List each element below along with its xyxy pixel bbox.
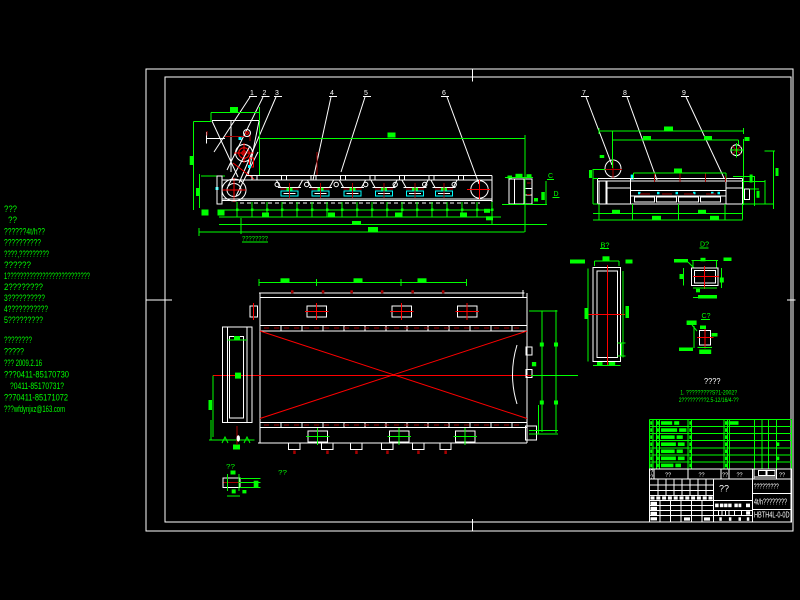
svg-text:1??????????????????????????: 1??????????????????????????	[4, 271, 90, 281]
svg-text:??: ??	[722, 473, 728, 479]
svg-text:4???????????: 4???????????	[4, 304, 48, 314]
svg-text:1: 1	[250, 90, 254, 97]
svg-text:1. ?????????S?1-2002?: 1. ?????????S?1-2002?	[680, 391, 738, 397]
svg-text:???0411-85170730: ???0411-85170730	[4, 370, 69, 380]
svg-text:???: ???	[4, 204, 17, 214]
svg-text:9: 9	[682, 90, 686, 97]
svg-text:2: 2	[263, 90, 267, 97]
svg-text:??: ??	[226, 464, 235, 471]
svg-text:?????????: ?????????	[754, 484, 779, 491]
svg-text:5?????????: 5?????????	[4, 315, 43, 325]
svg-text:??? 2009.2.16: ??? 2009.2.16	[4, 358, 42, 368]
svg-text:2?????????2.5-12/16/4-??: 2?????????2.5-12/16/4-??	[679, 398, 740, 404]
svg-text:6: 6	[442, 90, 446, 97]
svg-text:?????: ?????	[4, 347, 24, 357]
svg-text:??: ??	[8, 215, 17, 225]
svg-text:??70411-85171072: ??70411-85171072	[4, 393, 68, 403]
svg-text:8: 8	[623, 90, 627, 97]
svg-text:7: 7	[582, 90, 586, 97]
svg-text:?0411-85170731?: ?0411-85170731?	[10, 381, 64, 391]
svg-text:???wfdynjxz@163.com: ???wfdynjxz@163.com	[4, 404, 65, 414]
svg-text:4: 4	[330, 90, 334, 97]
svg-text:??????4t/h??: ??????4t/h??	[4, 227, 45, 237]
svg-text:2????????: 2????????	[4, 282, 43, 292]
svg-text:????: ????	[704, 377, 721, 386]
svg-text:HBTH4L-0-0D: HBTH4L-0-0D	[754, 511, 790, 520]
svg-text:5: 5	[364, 90, 368, 97]
svg-text:??: ??	[737, 473, 743, 479]
svg-text:??: ??	[779, 473, 785, 479]
svg-text:????????: ????????	[4, 335, 32, 345]
svg-text:??????????: ??????????	[4, 238, 41, 248]
svg-text:????,?????????: ????,?????????	[4, 249, 49, 259]
svg-text:??: ??	[719, 484, 729, 494]
svg-text:??: ??	[699, 473, 705, 479]
svg-text:3??????????: 3??????????	[4, 293, 45, 303]
svg-text:??????: ??????	[4, 260, 31, 270]
svg-text:??: ??	[278, 471, 288, 477]
svg-text:??: ??	[665, 473, 671, 479]
svg-text:4t/h????????: 4t/h????????	[754, 498, 787, 507]
svg-text:3: 3	[275, 90, 279, 97]
